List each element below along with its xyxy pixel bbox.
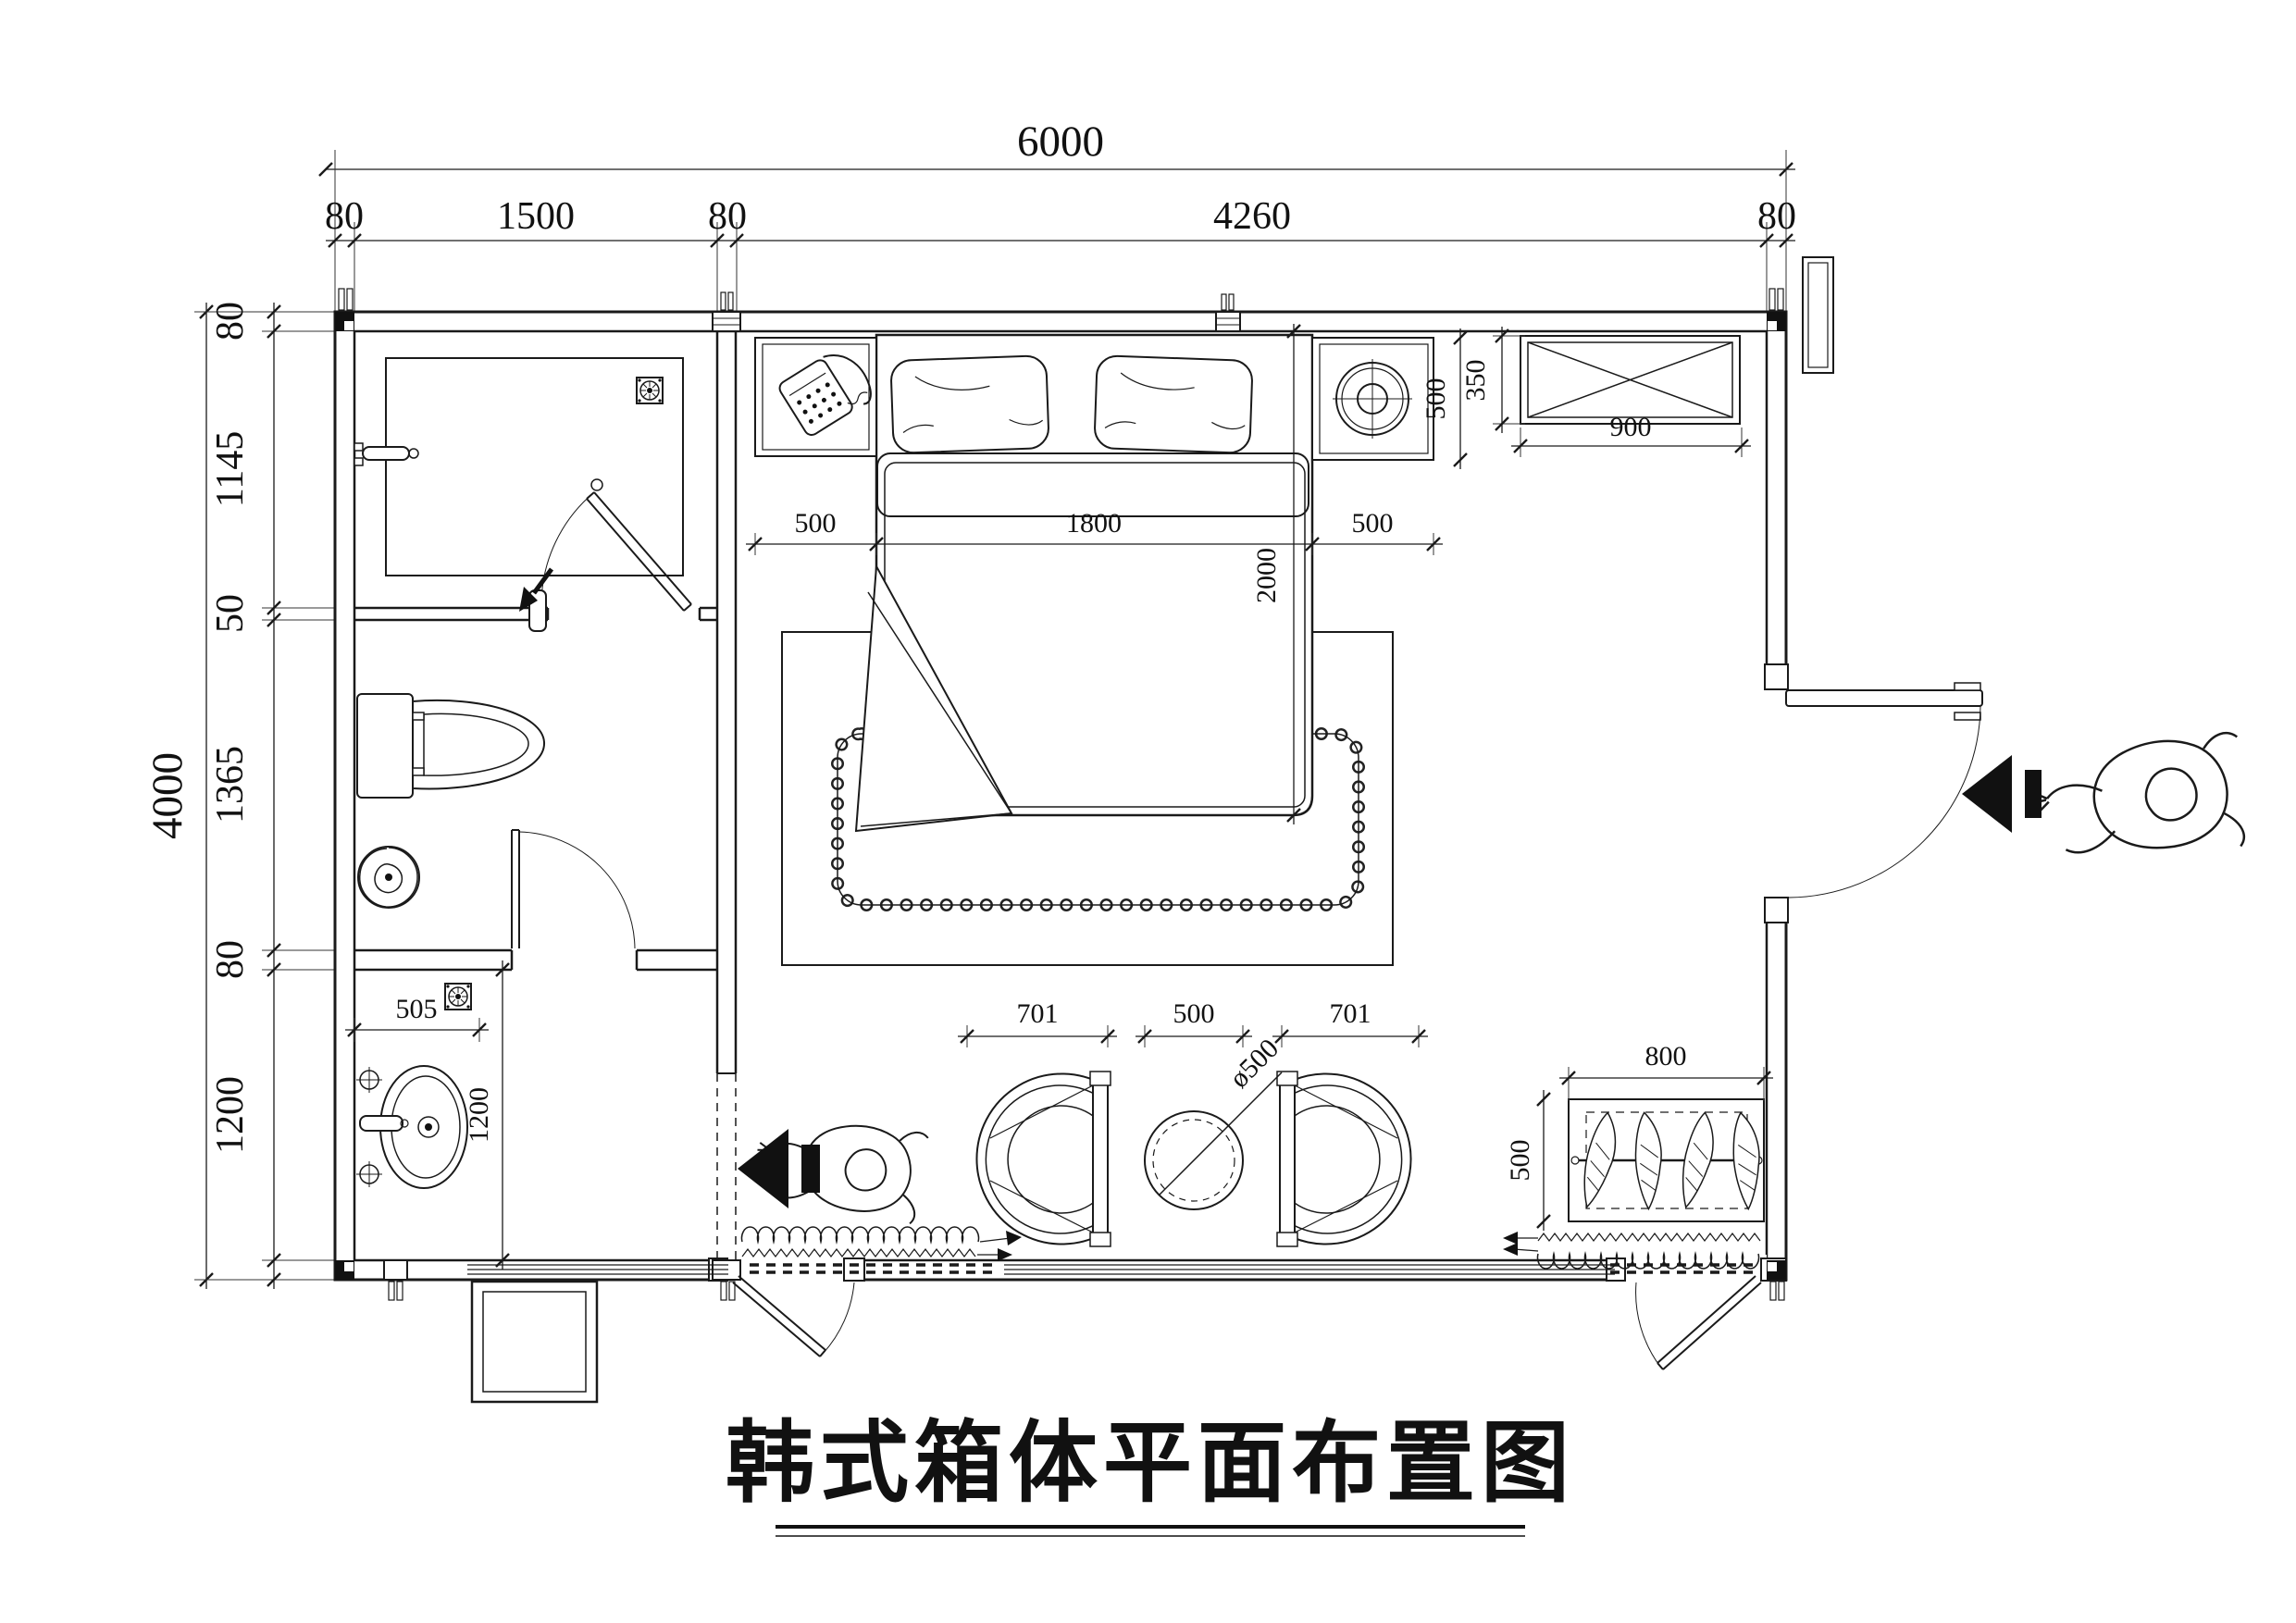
- person-figure-outside: [2028, 731, 2253, 874]
- pillow: [890, 355, 1049, 453]
- dim-left-1200: 1200: [209, 1076, 252, 1154]
- nightstand-speaker: [1312, 338, 1433, 460]
- plant-box: 800 500: [1505, 1041, 1773, 1231]
- dim-bed-width: 1800: [1066, 508, 1122, 539]
- shower: [354, 358, 691, 631]
- dim-top-80a: 80: [325, 195, 364, 238]
- dim-left-80b: 80: [209, 940, 252, 979]
- dim-left-80a: 80: [209, 302, 252, 341]
- dim-plant-width: 800: [1645, 1041, 1687, 1072]
- dim-left-1365: 1365: [209, 746, 252, 824]
- dim-chair-left: 701: [1017, 998, 1059, 1029]
- dim-left-50: 50: [209, 594, 252, 633]
- bottom-window: [467, 1265, 1758, 1274]
- dim-plant-depth: 500: [1505, 1140, 1535, 1182]
- shower-door: [519, 479, 691, 631]
- window-leaf: [1803, 257, 1833, 373]
- dim-left-1145: 1145: [209, 431, 252, 507]
- dim-overall-height: 4000: [143, 752, 192, 839]
- dim-gap: 500: [1173, 998, 1215, 1029]
- exterior-step: [472, 1282, 597, 1402]
- dim-vanity-length: 1200: [464, 1087, 494, 1143]
- nightstand-telephone: [755, 338, 878, 456]
- dim-cabinet-depth: 350: [1460, 360, 1491, 402]
- dimension-top: 6000 80 1500 80 4260 80: [319, 118, 1796, 312]
- title-block: 韩式箱体平面布置图: [726, 1414, 1575, 1536]
- floor-drain-icon: [637, 378, 663, 403]
- toilet: [357, 694, 544, 798]
- door-bottom-right: [1636, 1276, 1761, 1369]
- bed: [856, 335, 1312, 831]
- bathroom: 505 1200: [345, 358, 691, 1270]
- dim-top-80b: 80: [708, 195, 747, 238]
- dim-cabinet-width: 900: [1610, 412, 1652, 442]
- dim-chair-right: 701: [1330, 998, 1371, 1029]
- dim-bed-left-gap: 500: [795, 508, 837, 539]
- round-floor-drain: [358, 847, 419, 908]
- floor-drain-icon: [445, 984, 471, 1010]
- dim-top-1500: 1500: [497, 195, 575, 238]
- round-table: ø500: [1145, 1033, 1285, 1209]
- partition-wall: [717, 331, 736, 1260]
- bathroom-door: [512, 830, 635, 948]
- bedroom: 500 1800 500 2000 500 350 900: [742, 324, 1774, 1269]
- dimension-left: 4000 80 1145 50 1365 80 1200: [143, 302, 335, 1289]
- pillow: [1094, 355, 1252, 453]
- floor-plan: 6000 80 1500 80 4260 80 4000 80 1145 50 …: [0, 0, 2296, 1623]
- dim-top-80c: 80: [1757, 195, 1796, 238]
- drawing-title: 韩式箱体平面布置图: [726, 1414, 1575, 1513]
- entry-arrow-outside: [1962, 755, 2042, 833]
- chair-right: [1277, 1072, 1411, 1246]
- dim-vanity-width: 505: [396, 994, 438, 1024]
- dim-top-4260: 4260: [1213, 195, 1291, 238]
- dim-bed-length: 2000: [1251, 548, 1282, 603]
- dim-bed-right-gap: 500: [1352, 508, 1394, 539]
- dimension-sitting: 701 500 701: [958, 998, 1428, 1047]
- crossed-cabinet: [1520, 336, 1740, 424]
- chair-left: [976, 1072, 1111, 1246]
- entry-arrow-bedroom: [738, 1129, 820, 1208]
- door-bottom-left: [733, 1276, 854, 1357]
- vanity: 505 1200: [345, 960, 509, 1270]
- entry-door-right: [1786, 683, 1982, 898]
- dim-nightstand-depth: 500: [1421, 378, 1451, 420]
- dim-overall-width: 6000: [1017, 118, 1104, 166]
